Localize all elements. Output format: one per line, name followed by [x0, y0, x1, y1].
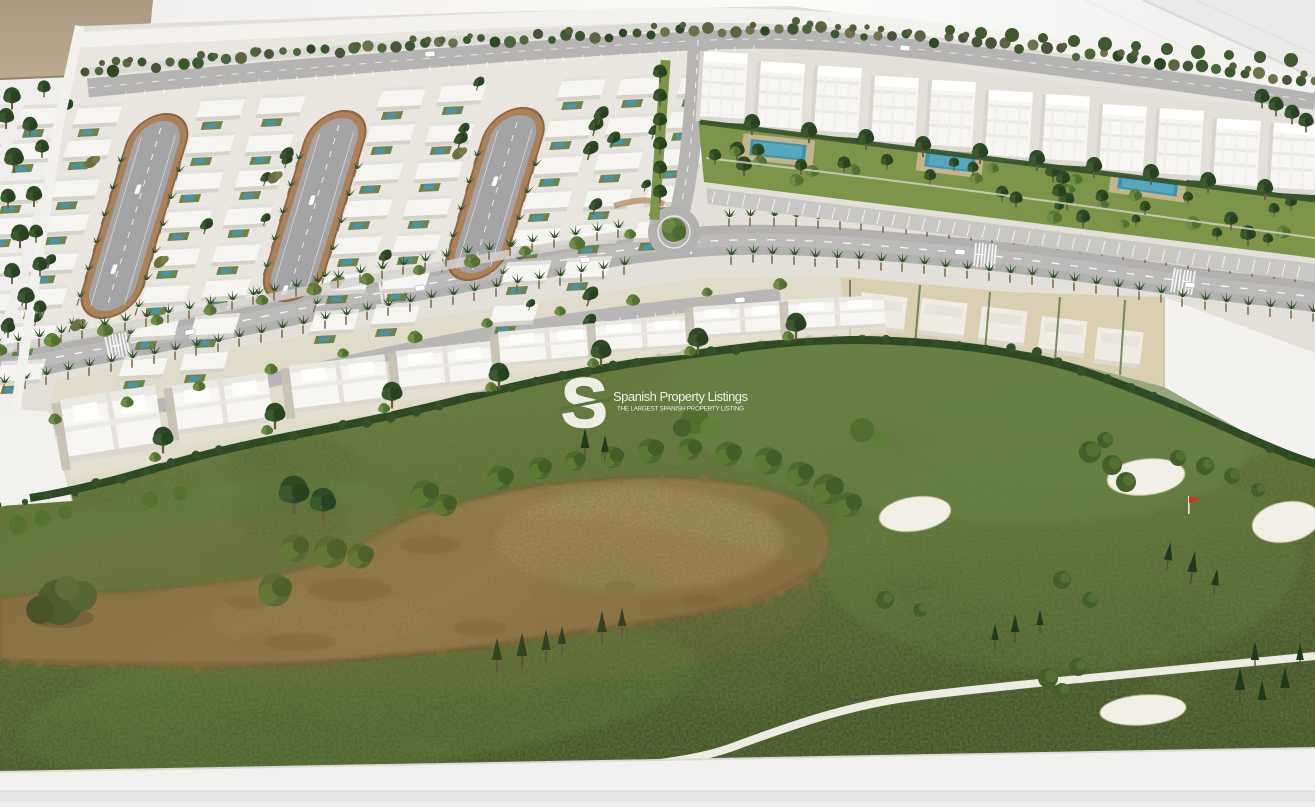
svg-text:Spanish Property Listings: Spanish Property Listings [613, 389, 749, 404]
svg-text:THE LARGEST SPANISH PROPERTY L: THE LARGEST SPANISH PROPERTY LISTING [617, 406, 744, 413]
